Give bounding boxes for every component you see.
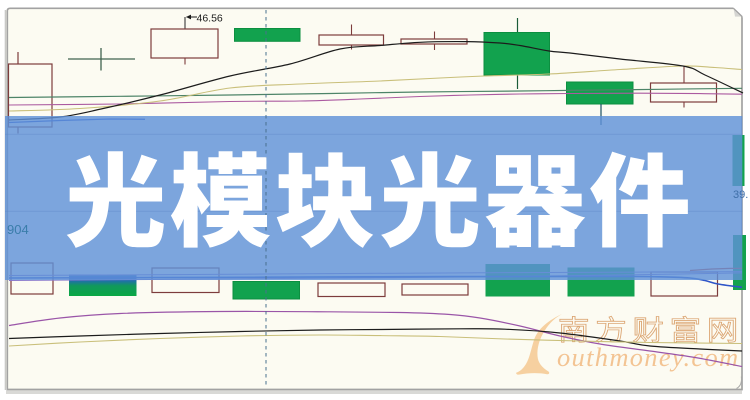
svg-text:outhmoney.com: outhmoney.com (557, 342, 740, 372)
svg-text:904: 904 (7, 222, 29, 237)
svg-text:46.56: 46.56 (197, 12, 223, 24)
svg-text:39.: 39. (733, 189, 748, 201)
